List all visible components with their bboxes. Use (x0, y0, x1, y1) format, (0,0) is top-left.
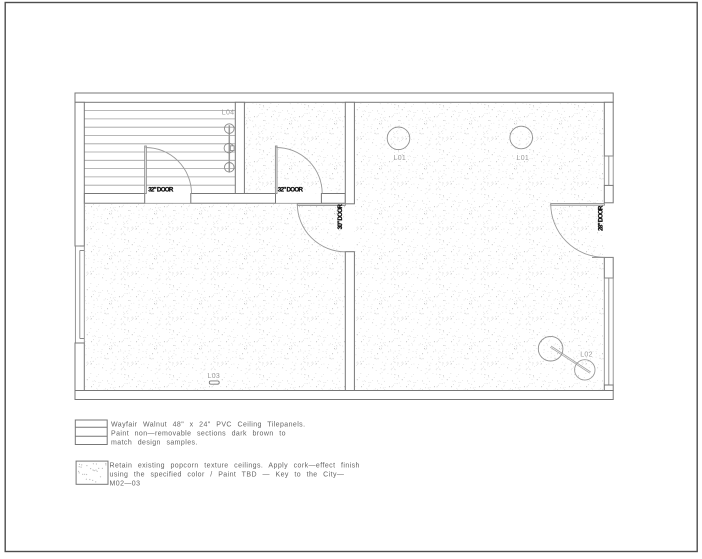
svg-text:L04: L04 (222, 110, 235, 117)
svg-text:Wayfair Walnut 48" x 24" PVC C: Wayfair Walnut 48" x 24" PVC Ceiling Til… (111, 422, 305, 429)
svg-text:L01: L01 (517, 155, 530, 162)
svg-text:32" DOOR: 32" DOOR (148, 186, 174, 193)
svg-text:L02: L02 (580, 351, 593, 358)
svg-text:Retain existing popcorn textur: Retain existing popcorn texture ceilings… (110, 463, 360, 470)
svg-text:M02—03: M02—03 (110, 481, 141, 488)
svg-text:L01: L01 (394, 155, 407, 162)
svg-text:Paint non—removable sections d: Paint non—removable sections dark brown … (111, 431, 286, 438)
svg-text:32" DOOR: 32" DOOR (278, 186, 304, 193)
svg-text:28" DOOR: 28" DOOR (598, 205, 605, 231)
svg-text:30" DOOR: 30" DOOR (337, 204, 344, 230)
svg-text:using the specified color / Pa: using the specified color / Paint TBD — … (110, 472, 345, 479)
svg-text:match design samples.: match design samples. (111, 440, 198, 447)
svg-text:L03: L03 (208, 373, 221, 380)
